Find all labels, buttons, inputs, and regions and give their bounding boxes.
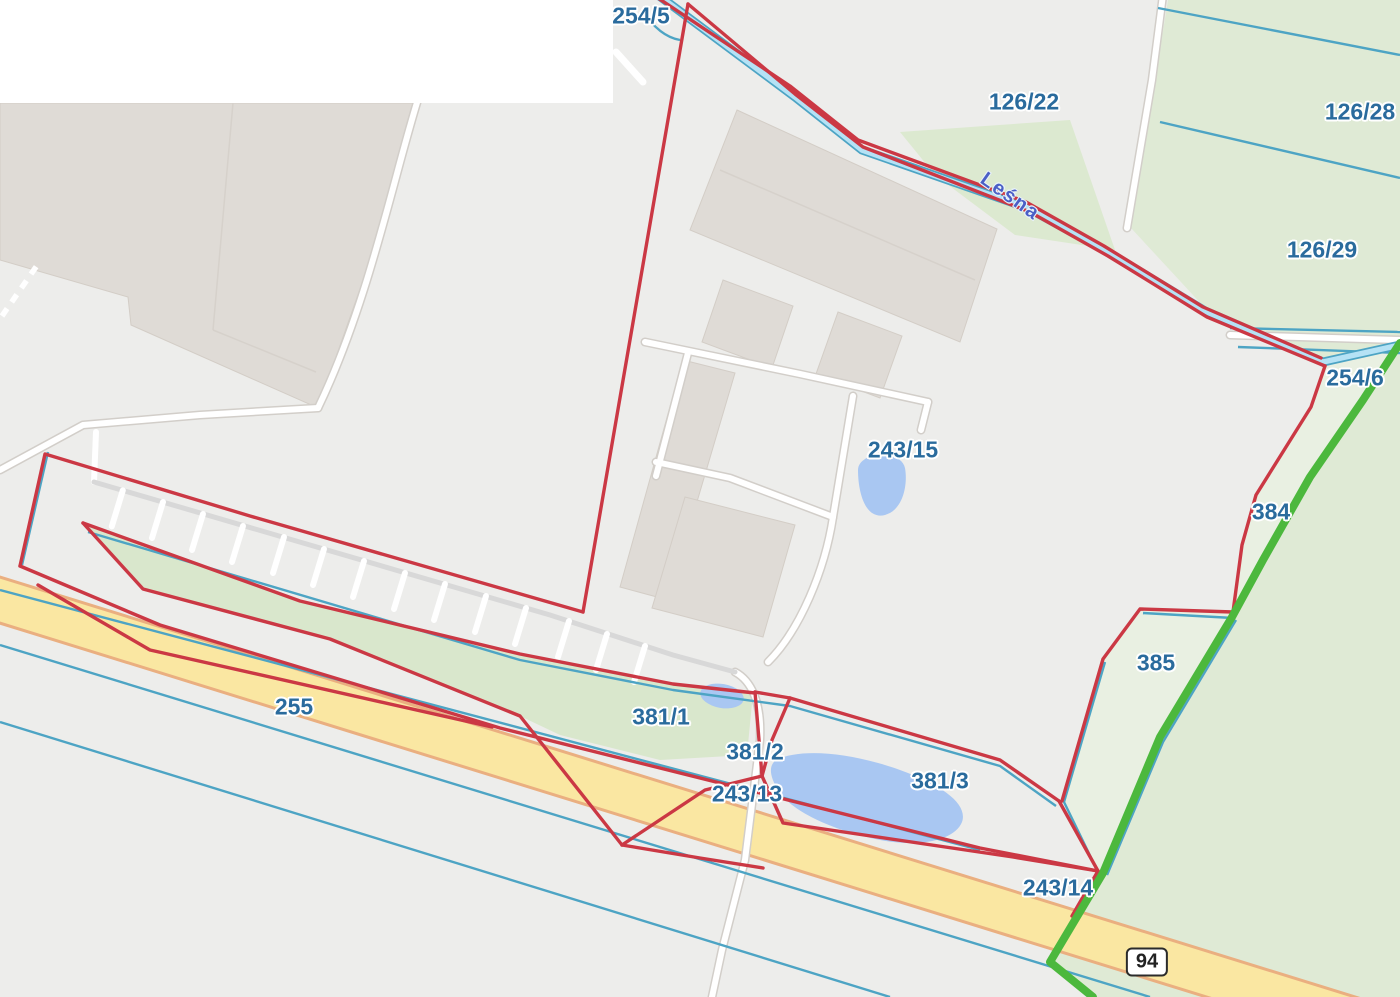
map-canvas[interactable]: 254/5126/22126/28126/29254/6243/15384385… [0, 0, 1400, 997]
blank-overlay-panel [0, 0, 613, 103]
map-graphics [0, 0, 1400, 997]
road-shield-94: 94 [1126, 948, 1168, 977]
